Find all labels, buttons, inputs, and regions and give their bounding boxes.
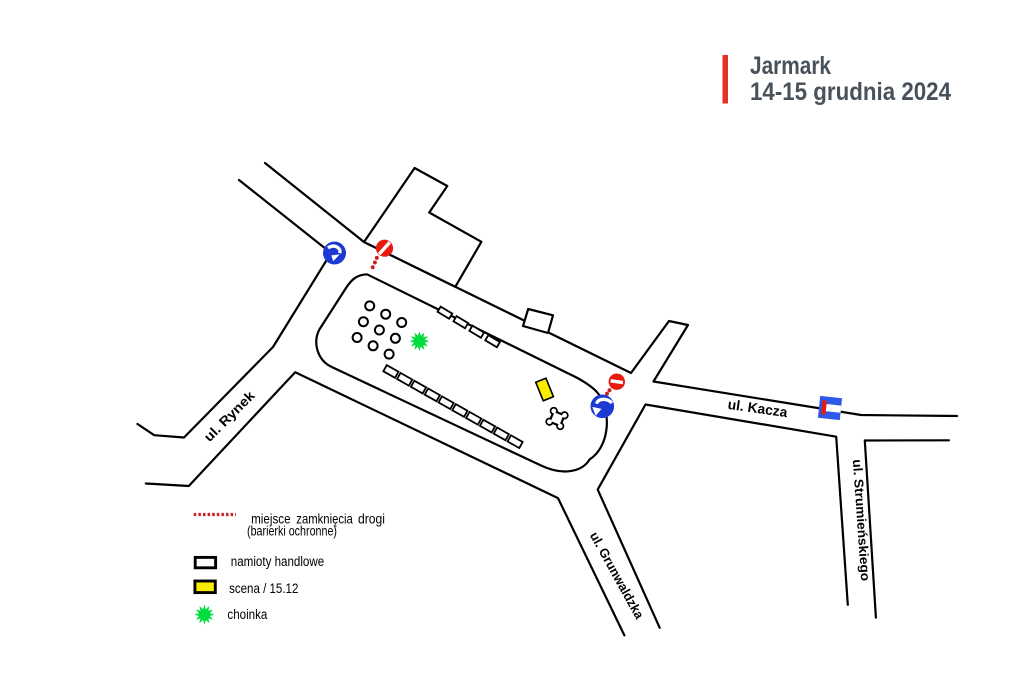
svg-text:(barierki ochronne): (barierki ochronne) [247,523,337,539]
svg-text:14-15 grudnia 2024: 14-15 grudnia 2024 [750,78,951,106]
svg-text:Jarmark: Jarmark [750,52,831,80]
svg-text:namioty handlowe: namioty handlowe [231,554,324,569]
svg-text:ul. Kacza: ul. Kacza [727,396,789,420]
svg-text:ul. Rynek: ul. Rynek [201,388,258,445]
svg-text:choinka: choinka [227,607,267,622]
svg-text:ul. Strumieńskiego: ul. Strumieńskiego [850,459,873,582]
svg-text:scena / 15.12: scena / 15.12 [229,580,298,596]
svg-text:drogi: drogi [358,511,385,527]
